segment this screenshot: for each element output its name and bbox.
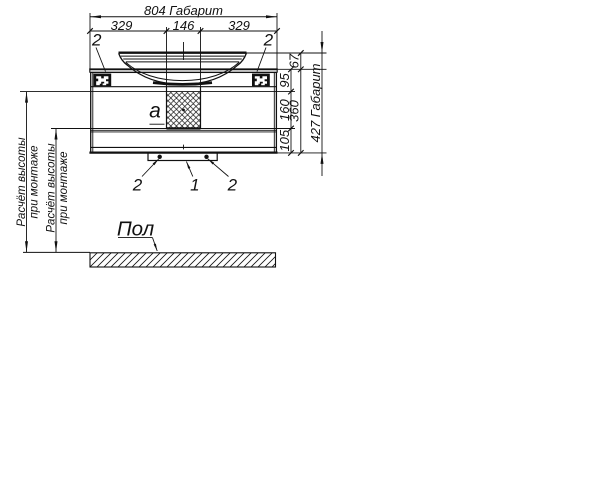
- svg-text:146: 146: [173, 18, 195, 33]
- svg-text:105: 105: [277, 129, 292, 151]
- svg-text:2: 2: [91, 31, 102, 50]
- svg-text:360: 360: [287, 99, 302, 121]
- svg-text:Расчёт высоты: Расчёт высоты: [46, 143, 58, 233]
- svg-text:2: 2: [263, 31, 274, 50]
- svg-text:Расчёт высоты: Расчёт высоты: [16, 137, 28, 227]
- svg-text:1: 1: [190, 176, 199, 195]
- svg-text:329: 329: [228, 18, 250, 33]
- svg-text:427 Габарит: 427 Габарит: [308, 63, 323, 142]
- svg-text:при монтаже: при монтаже: [29, 145, 41, 218]
- svg-text:2: 2: [227, 176, 238, 195]
- svg-text:a: a: [149, 100, 161, 123]
- svg-text:67: 67: [287, 53, 302, 68]
- svg-text:Пол: Пол: [117, 218, 155, 241]
- svg-text:329: 329: [111, 18, 133, 33]
- svg-text:95: 95: [277, 73, 292, 88]
- svg-text:при монтаже: при монтаже: [58, 151, 70, 224]
- svg-text:804 Габарит: 804 Габарит: [144, 3, 223, 18]
- svg-text:2: 2: [132, 176, 143, 195]
